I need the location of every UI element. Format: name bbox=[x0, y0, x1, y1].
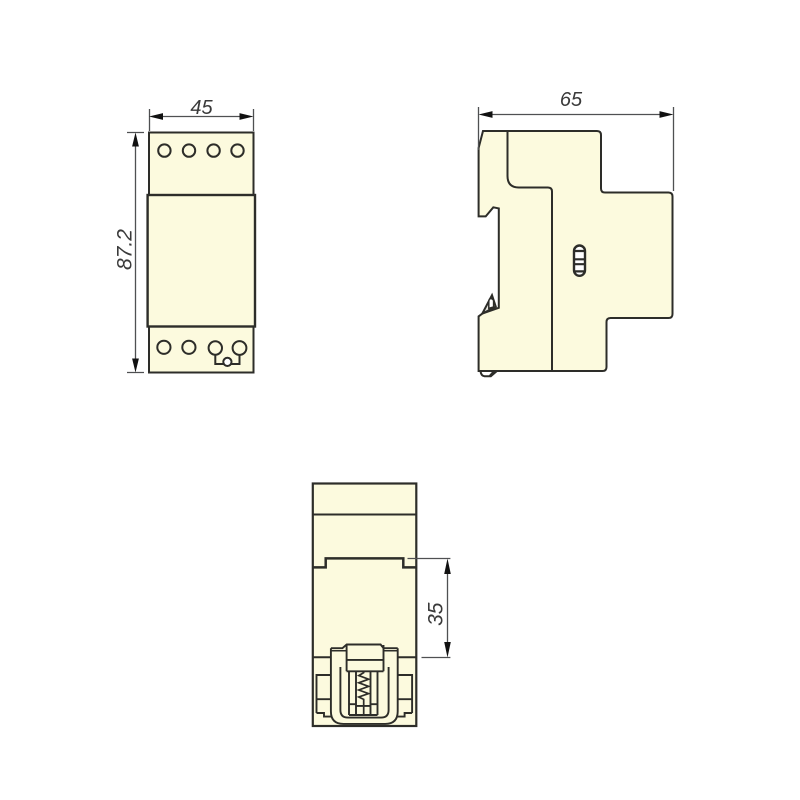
svg-text:65: 65 bbox=[560, 89, 583, 111]
svg-text:35: 35 bbox=[425, 602, 448, 626]
svg-text:87.2: 87.2 bbox=[114, 229, 137, 270]
svg-text:45: 45 bbox=[190, 97, 213, 119]
